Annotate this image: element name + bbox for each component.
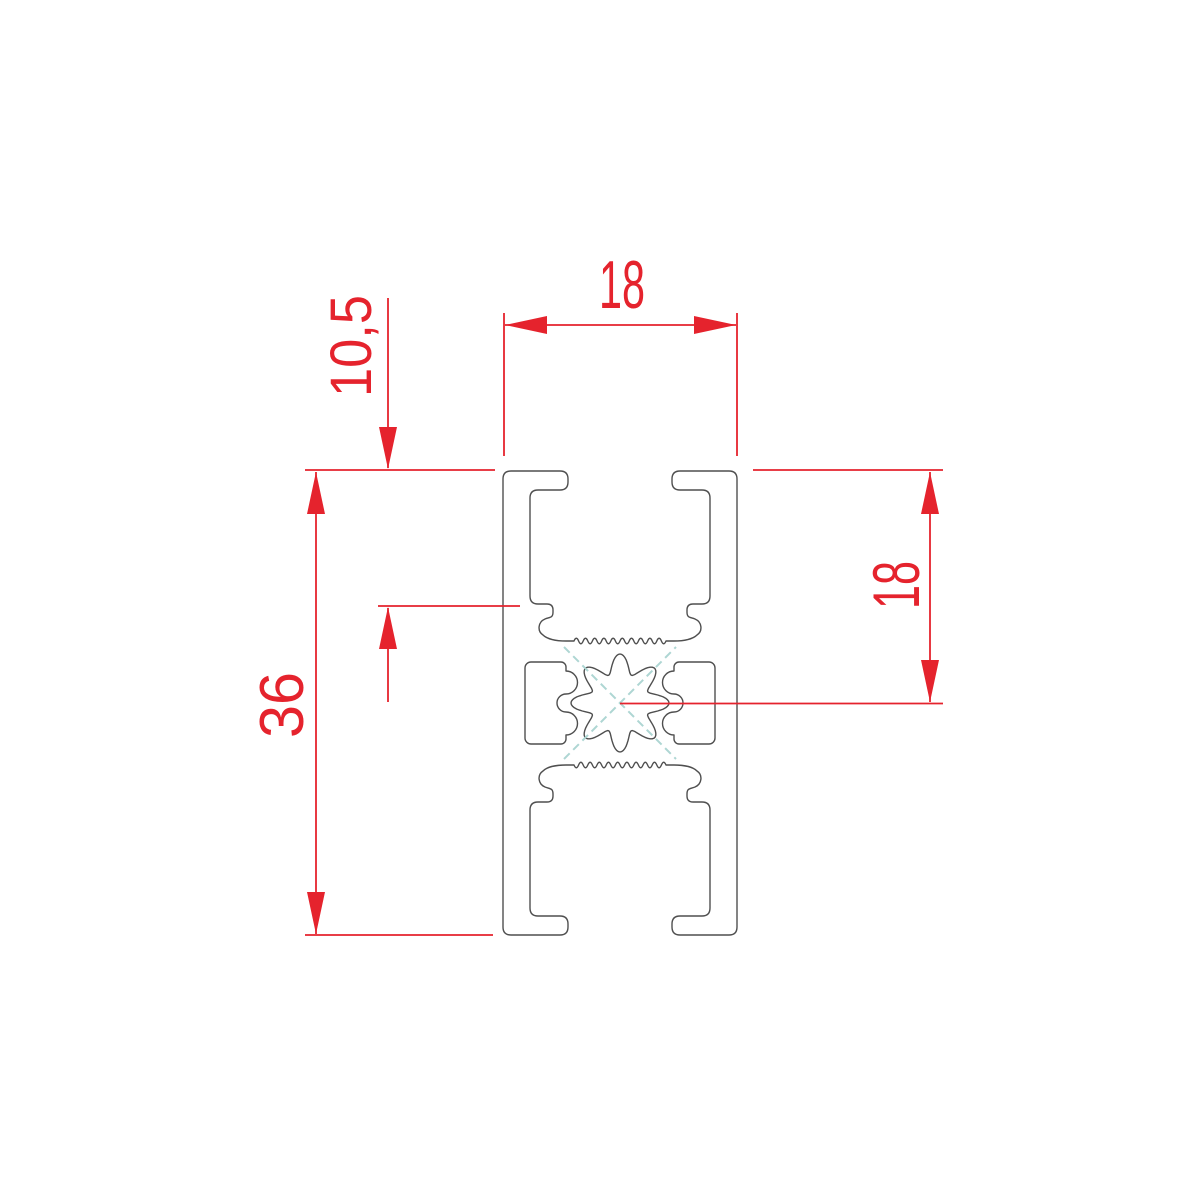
arrow-center-height-top: [921, 472, 939, 514]
dimensions: 18 10,5 36 18: [248, 247, 943, 935]
arrow-slot-depth-up: [379, 607, 397, 649]
drawing-canvas: 18 10,5 36 18: [0, 0, 1200, 1200]
arrow-overall-height-bottom: [307, 892, 325, 934]
arrow-overall-height-top: [307, 472, 325, 514]
arrow-center-height-bottom: [921, 660, 939, 702]
arrow-width-left: [505, 316, 547, 334]
dim-label-width-top: 18: [599, 247, 645, 323]
dim-label-overall-height: 36: [248, 672, 317, 738]
dim-label-center-height: 18: [859, 561, 933, 609]
arrow-width-right: [694, 316, 736, 334]
arrow-slot-depth-down: [379, 427, 397, 469]
profile-technical-drawing: 18 10,5 36 18: [0, 0, 1200, 1200]
arrowheads: [307, 316, 939, 934]
dim-label-slot-depth: 10,5: [319, 295, 384, 397]
